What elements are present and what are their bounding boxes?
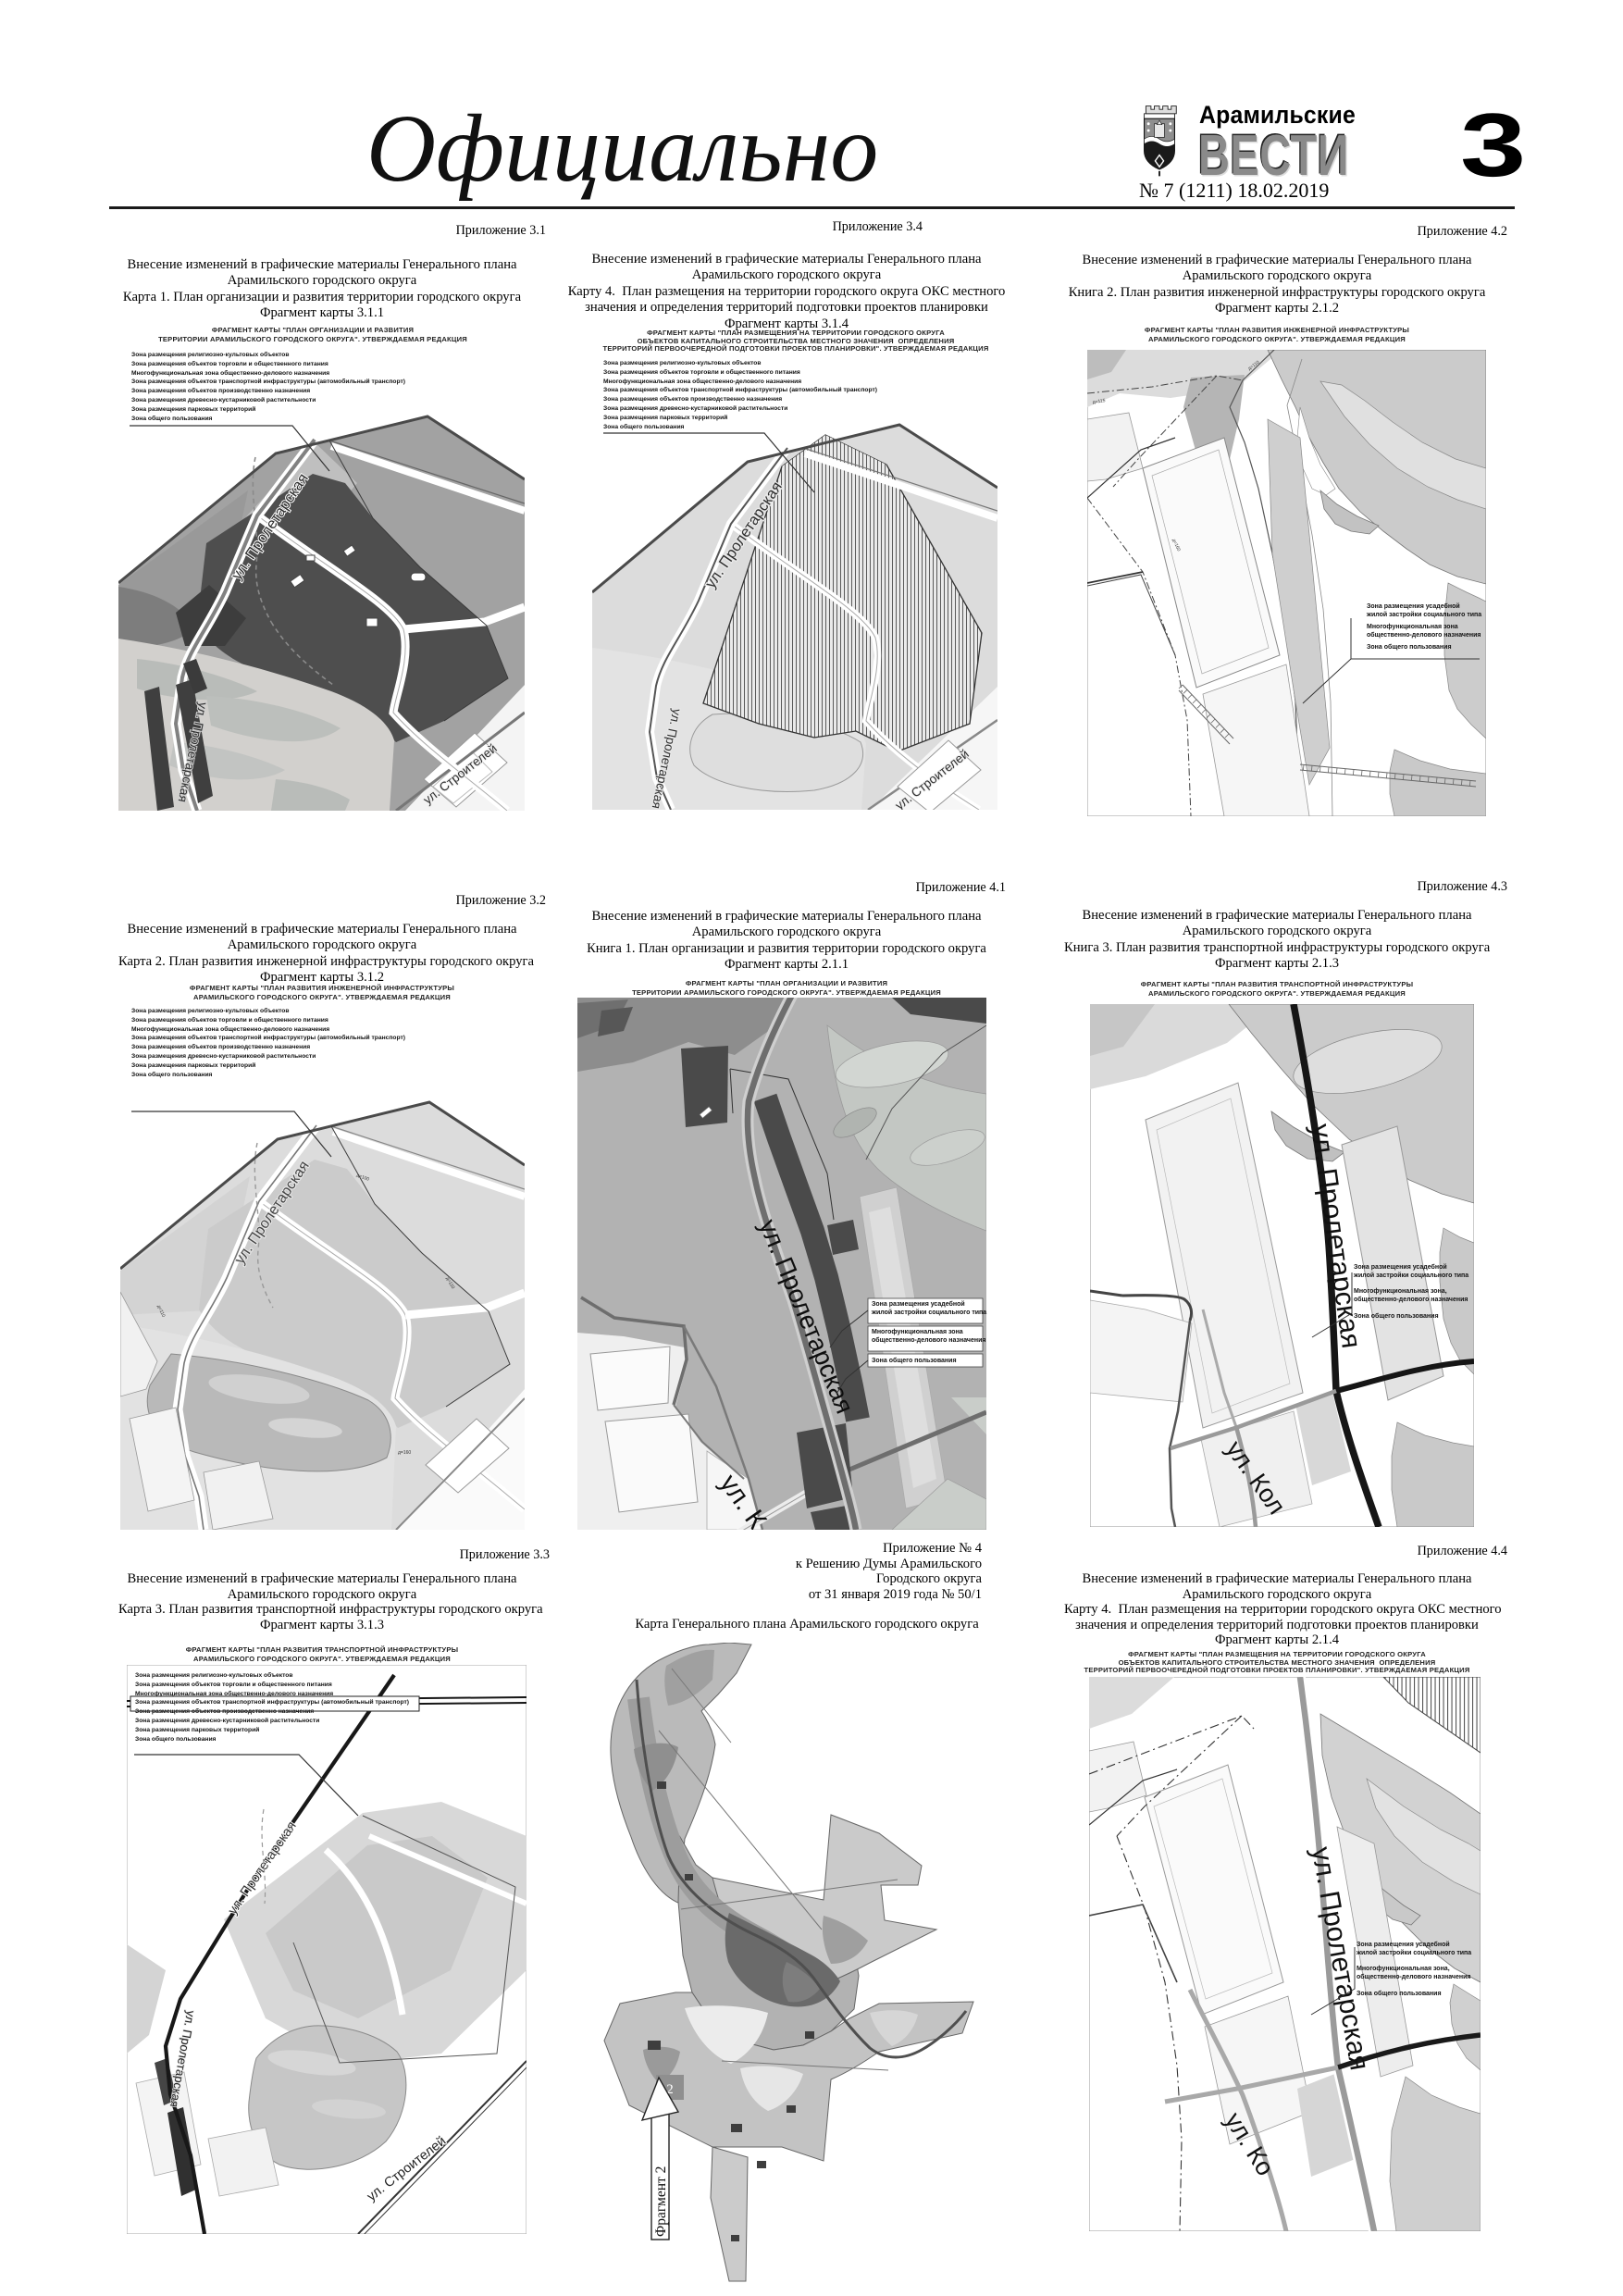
svg-text:д=160: д=160 — [398, 1450, 411, 1456]
svg-text:Фрагмент 2: Фрагмент 2 — [653, 2166, 669, 2237]
